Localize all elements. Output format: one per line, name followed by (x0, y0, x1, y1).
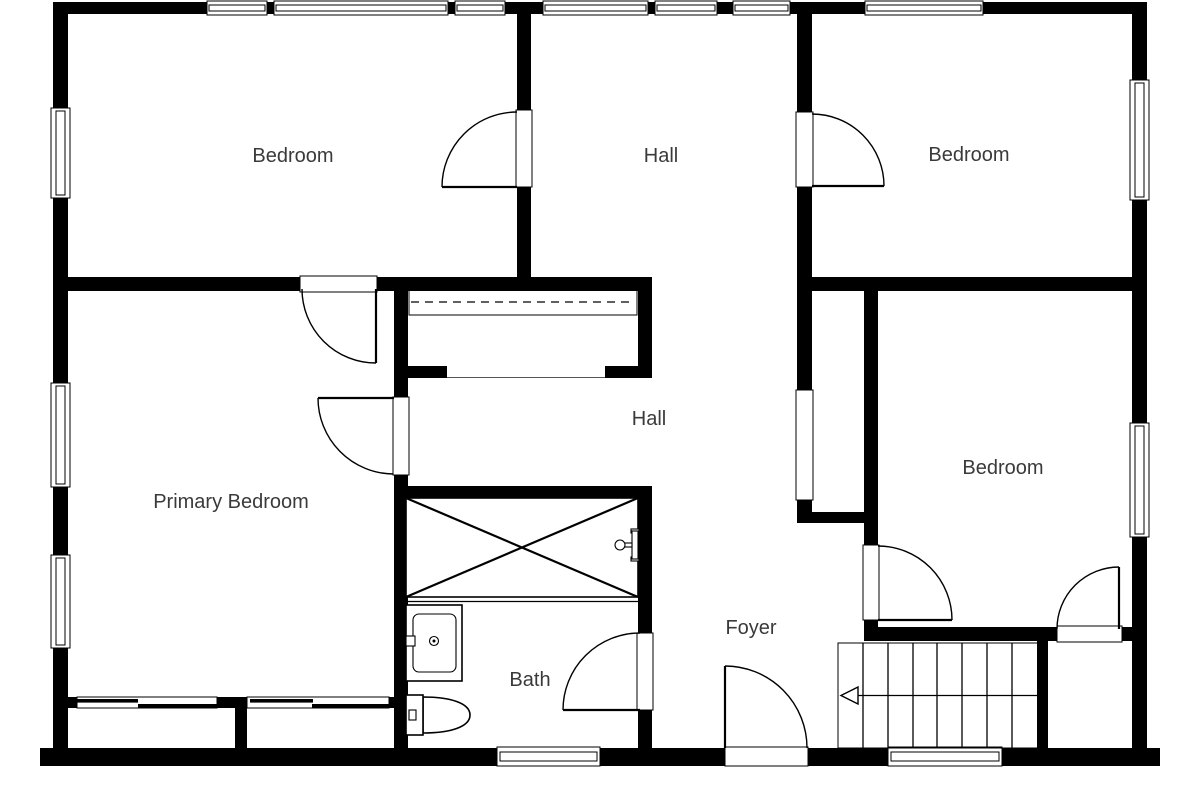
floor-plan: Bedroom Hall Bedroom Primary Bedroom Hal… (0, 0, 1200, 800)
hall-closet (409, 289, 637, 378)
door-opening (393, 397, 409, 475)
door-bedroom-top-right (812, 114, 884, 186)
wall-segment (797, 187, 812, 277)
window (51, 108, 70, 198)
closet-jamb (389, 697, 398, 708)
window (655, 1, 717, 15)
floor-plan-canvas: Bedroom Hall Bedroom Primary Bedroom Hal… (0, 0, 1200, 800)
toilet-flush-button (409, 710, 416, 720)
wall-segment (235, 708, 247, 748)
wall-segment (638, 498, 652, 633)
wall-segment (68, 277, 300, 291)
windows (51, 1, 1149, 766)
wall-segment (517, 187, 531, 277)
door-bedroom-top-left (442, 112, 517, 187)
bath-fixtures (406, 498, 639, 735)
wall-segment (864, 291, 878, 545)
door-opening (796, 112, 813, 187)
room-label-bath: Bath (509, 669, 550, 691)
sink-faucet-icon (406, 636, 415, 646)
window (1130, 423, 1149, 537)
wall-segment (605, 366, 652, 378)
window (497, 747, 600, 766)
door-opening (1057, 626, 1122, 642)
wall-segment (797, 14, 812, 112)
window (51, 383, 70, 487)
sliding-door-panel (250, 699, 313, 703)
door-bedroom-right-closet (1057, 567, 1119, 629)
door-bedroom-right (878, 546, 952, 620)
window (1130, 80, 1149, 200)
wall-segment (1037, 641, 1048, 748)
room-labels: Bedroom Hall Bedroom Primary Bedroom Hal… (153, 144, 1043, 691)
window (733, 1, 790, 15)
door-opening (637, 633, 653, 710)
room-label-bedroom-right: Bedroom (962, 457, 1043, 479)
cased-opening (796, 390, 813, 500)
room-label-bedroom-top-left: Bedroom (252, 145, 333, 167)
door-primary-from-hall (318, 398, 394, 474)
window (207, 1, 267, 15)
wall-segment (394, 366, 447, 378)
stairs-direction-arrow-icon (841, 687, 858, 704)
window (274, 1, 448, 15)
interior-walls (68, 14, 1132, 748)
wall-segment (864, 627, 1057, 641)
toilet (406, 695, 470, 735)
door-opening (516, 110, 532, 187)
wall-segment (638, 277, 652, 377)
wall-segment (394, 277, 408, 397)
front-door (725, 666, 807, 748)
door-bath (563, 633, 640, 710)
wall-segment (517, 14, 531, 110)
window (543, 1, 648, 15)
door-primary-from-bedroom (302, 289, 376, 363)
front-door-opening (725, 747, 808, 766)
door-opening (863, 545, 879, 620)
room-label-hall-upper: Hall (644, 145, 678, 167)
wall-segment (797, 291, 812, 390)
door-opening (300, 276, 377, 292)
room-label-primary-bedroom: Primary Bedroom (153, 491, 309, 513)
vanity-sink (406, 605, 462, 681)
window (888, 747, 1002, 766)
sliding-door-panel (312, 704, 390, 708)
room-label-bedroom-top-right: Bedroom (928, 144, 1009, 166)
wall-segment (797, 277, 1132, 291)
room-label-hall-lower: Hall (632, 408, 666, 430)
sliding-door-panel (138, 704, 217, 708)
exterior-walls (40, 2, 1160, 766)
wall-segment (1122, 627, 1132, 641)
sliding-door-panel (75, 699, 138, 703)
toilet-bowl (423, 697, 470, 733)
wall-segment (394, 486, 652, 498)
window (865, 1, 983, 15)
bathtub (406, 498, 639, 602)
window (51, 555, 70, 648)
wall-segment (638, 710, 652, 748)
closet-jamb (217, 697, 247, 708)
room-label-foyer: Foyer (725, 617, 776, 639)
staircase (838, 643, 1038, 748)
window (455, 1, 505, 15)
